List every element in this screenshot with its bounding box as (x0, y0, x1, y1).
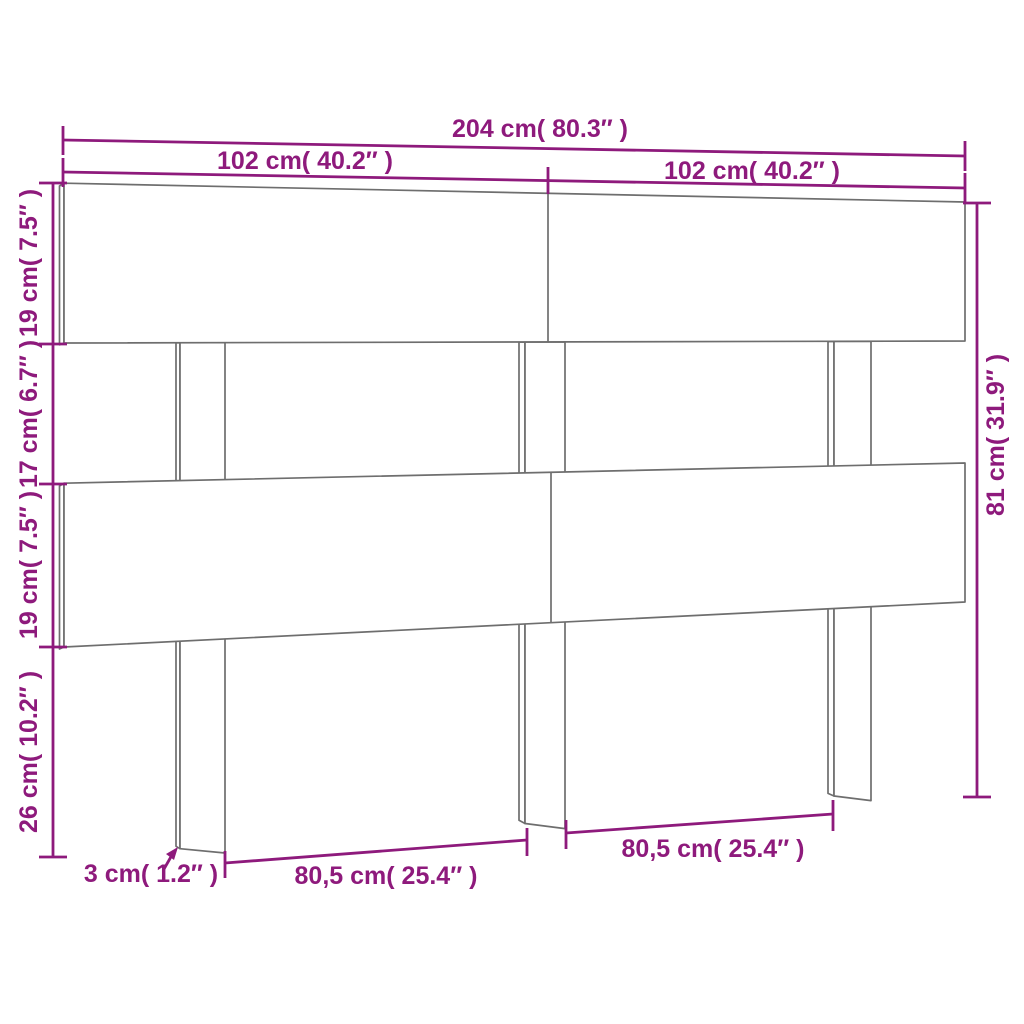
total-height-label: 81 cm( 31.9″ ) (982, 354, 1010, 516)
leg-thickness-dimension: 3 cm( 1.2″ ) (84, 847, 218, 888)
headboard-drawing (60, 183, 966, 853)
diagram-canvas: 204 cm( 80.3″ ) 102 cm( 40.2″ ) 102 cm( … (0, 0, 1024, 1024)
total-width-label: 204 cm( 80.3″ ) (452, 115, 628, 143)
leg-thickness-label: 3 cm( 1.2″ ) (84, 860, 218, 888)
leg-below-height-label: 26 cm( 10.2″ ) (15, 671, 43, 833)
left-half-width-label: 102 cm( 40.2″ ) (217, 147, 393, 175)
top-board-front-face (64, 183, 965, 343)
leg-thickness-arrowhead-icon (166, 847, 178, 860)
right-half-width-label: 102 cm( 40.2″ ) (664, 157, 840, 185)
left-leg-spacing-dimension: 80,5 cm( 25.4″ ) (225, 828, 527, 890)
total-height-dimension: 81 cm( 31.9″ ) (963, 203, 1010, 797)
left-leg-spacing-label: 80,5 cm( 25.4″ ) (295, 862, 478, 890)
left-leg-spacing-line (225, 840, 527, 863)
right-leg-spacing-label: 80,5 cm( 25.4″ ) (622, 835, 805, 863)
right-leg-spacing-dimension: 80,5 cm( 25.4″ ) (566, 800, 833, 863)
product-dimension-diagram: 204 cm( 80.3″ ) 102 cm( 40.2″ ) 102 cm( … (0, 0, 1024, 1024)
right-leg-spacing-line (566, 814, 833, 833)
lower-board-height-label: 19 cm( 7.5″ ) (15, 491, 43, 639)
top-board-height-label: 19 cm( 7.5″ ) (15, 189, 43, 337)
headboard-top-board (60, 183, 966, 345)
slat-gap-height-label: 17 cm( 6.7″ ) (15, 340, 43, 488)
